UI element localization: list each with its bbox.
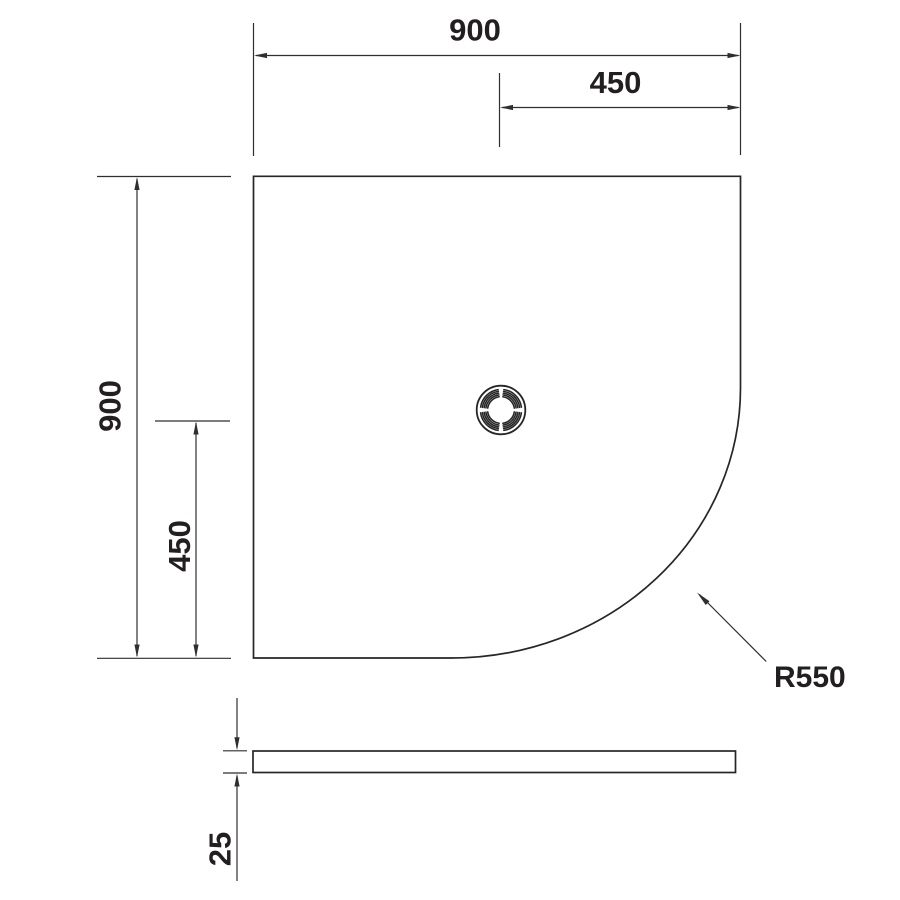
svg-text:25: 25 [203, 832, 238, 866]
svg-text:900: 900 [449, 13, 501, 48]
svg-text:450: 450 [162, 520, 197, 572]
svg-text:900: 900 [93, 380, 128, 432]
svg-text:450: 450 [590, 65, 642, 100]
svg-text:R550: R550 [774, 661, 846, 694]
